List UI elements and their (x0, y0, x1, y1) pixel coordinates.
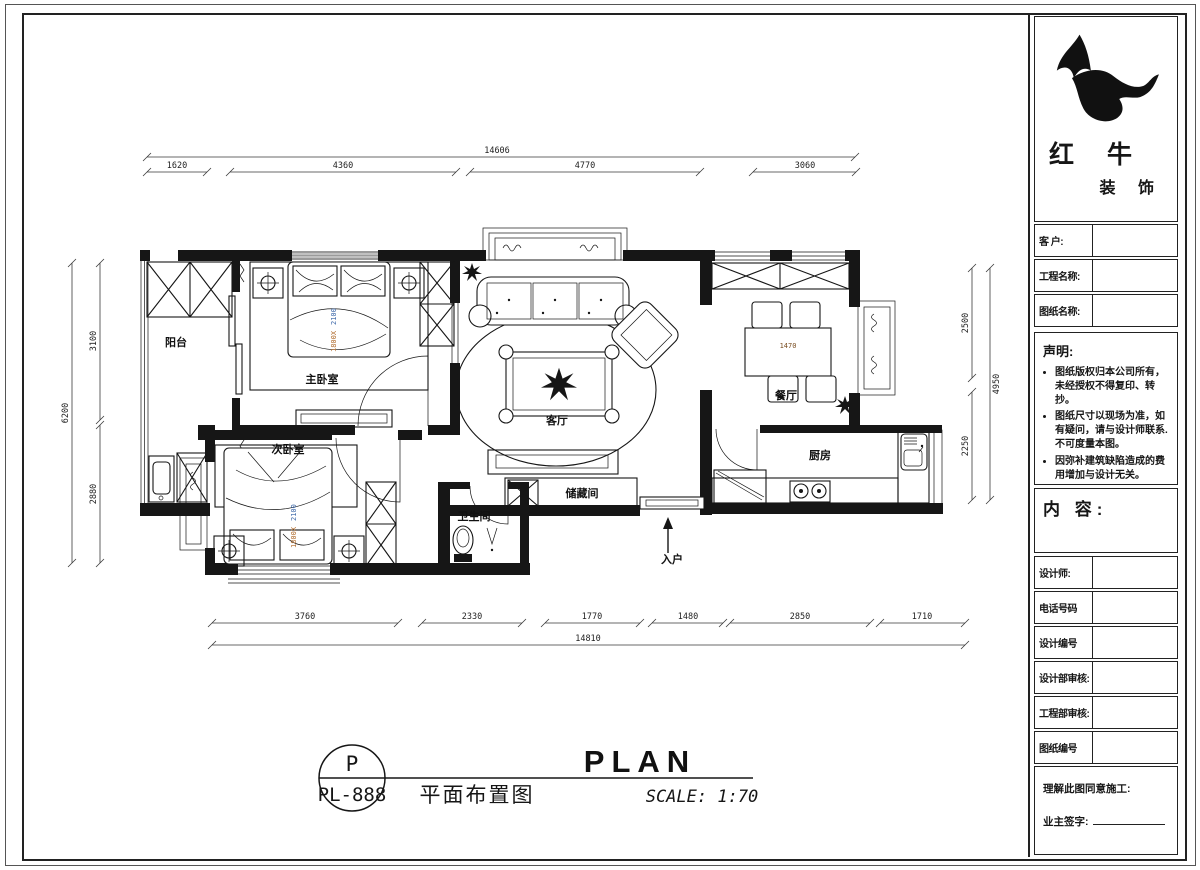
field-value[interactable] (1093, 627, 1177, 658)
sheet-title-en: PLAN (584, 744, 696, 779)
dim-bottom-seg: 1710 (912, 612, 932, 622)
field-value[interactable] (1093, 697, 1177, 728)
room-label-living: 客厅 (545, 413, 568, 427)
tv-cabinet (296, 410, 392, 427)
bay-window-dining (858, 301, 895, 395)
dim-bottom-total: 14810 (575, 634, 601, 644)
door-kitchen (716, 429, 757, 470)
sheet-code-letter: P (346, 752, 359, 776)
dim-bottom-seg: 1480 (678, 612, 698, 622)
company-logo-box: 红 牛 装 饰 (1034, 16, 1178, 222)
dim-bottom-seg: 1770 (582, 612, 602, 622)
drawing-sheet: 14606 1620 4360 4770 3060 3760 2330 1770… (0, 0, 1200, 870)
coffee-table (499, 345, 619, 423)
floor-plan-svg: 14606 1620 4360 4770 3060 3760 2330 1770… (22, 13, 1028, 857)
field-value[interactable] (1093, 557, 1177, 588)
entry-arrow-icon (663, 517, 673, 529)
content-box: 内 容: (1034, 488, 1178, 553)
window-bedroom2 (228, 566, 340, 583)
bed-size-label: 1800X (290, 526, 298, 548)
field-label: 图纸名称: (1035, 295, 1093, 326)
statement-list: 图纸版权归本公司所有，未经授权不得复印、转抄。 图纸尺寸以现场为准，如有疑问，请… (1043, 366, 1171, 482)
room-label-bathroom: 卫生间 (458, 509, 491, 523)
field-value[interactable] (1093, 592, 1177, 623)
bed-size-label: 1800X (330, 330, 338, 352)
dim-right-seg: 2500 (961, 313, 971, 333)
door-master (358, 356, 428, 426)
field-label: 设计编号 (1035, 627, 1093, 658)
statement-item: 图纸尺寸以现场为准，如有疑问，请与设计师联系. 不可度量本图。 (1055, 410, 1171, 451)
signature-box: 理解此图同意施工: 业主签字: (1034, 766, 1178, 855)
toilet (454, 554, 472, 562)
field-label: 工程部审核: (1035, 697, 1093, 728)
field-label: 电话号码 (1035, 592, 1093, 623)
dim-top-seg: 3060 (795, 161, 815, 171)
field-row-drawing-name: 图纸名称: (1034, 294, 1178, 327)
field-value[interactable] (1093, 260, 1177, 291)
field-value[interactable] (1093, 662, 1177, 693)
field-row-drawing-number: 图纸编号 (1034, 731, 1178, 764)
room-label-dining: 餐厅 (774, 388, 797, 402)
sliding-door (236, 344, 242, 394)
content-label: 内 容: (1043, 500, 1107, 519)
entry: 入户 (640, 497, 704, 566)
field-row-project-name: 工程名称: (1034, 259, 1178, 292)
ceiling-light-icon (253, 268, 283, 298)
sink (901, 434, 927, 470)
field-value[interactable] (1093, 225, 1177, 256)
field-label: 图纸编号 (1035, 732, 1093, 763)
dim-left-seg: 2880 (89, 484, 99, 504)
statement-box: 声明: 图纸版权归本公司所有，未经授权不得复印、转抄。 图纸尺寸以现场为准，如有… (1034, 332, 1178, 485)
dim-bottom-seg: 2330 (462, 612, 482, 622)
field-label: 设计师: (1035, 557, 1093, 588)
title-block-sidebar: 红 牛 装 饰 客 户: 工程名称: 图纸名称: 声明: 图纸版权归本公司所有，… (1028, 13, 1185, 857)
company-name-line1: 红 牛 (1049, 135, 1177, 171)
tv-cabinet (488, 450, 618, 474)
dim-left-total: 6200 (61, 403, 71, 423)
counter-cabinet (714, 470, 766, 503)
field-label: 设计部审核: (1035, 662, 1093, 693)
sheet-scale: SCALE: 1:70 (646, 787, 759, 807)
field-value[interactable] (1093, 295, 1177, 326)
room-label-storage: 储藏间 (566, 486, 599, 500)
balcony-furniture (147, 262, 232, 502)
statement-item: 因弥补建筑缺陷造成的费用增加与设计无关。 (1055, 455, 1171, 483)
bay-window-top (483, 228, 627, 260)
room-label-kitchen: 厨房 (809, 448, 831, 462)
dim-bottom-seg: 2850 (790, 612, 810, 622)
bathroom-furniture (453, 526, 497, 562)
dim-top-seg: 4360 (333, 161, 353, 171)
field-label: 工程名称: (1035, 260, 1093, 291)
master-bedroom-furniture: 1800X 2100 (250, 262, 454, 427)
field-label: 客 户: (1035, 225, 1093, 256)
room-label-balcony: 阳台 (165, 335, 187, 349)
sheet-code-number: PL-888 (318, 784, 387, 806)
room-label-entry: 入户 (661, 552, 683, 566)
ceiling-light-icon (334, 536, 364, 566)
room-label-master: 主卧室 (306, 372, 339, 386)
window-kitchen (929, 430, 942, 505)
dining-table-label: 1470 (780, 342, 797, 350)
statement-title: 声明: (1043, 341, 1171, 360)
sofa (477, 277, 629, 325)
titleblock: P PL-888 平面布置图 PLAN SCALE: 1:70 (318, 744, 759, 811)
window-master (292, 251, 378, 260)
dim-right-total: 4950 (992, 374, 1002, 394)
field-row-designer: 设计师: (1034, 556, 1178, 589)
dim-top-total: 14606 (484, 146, 510, 156)
field-value[interactable] (1093, 732, 1177, 763)
room-label-bedroom2: 次卧室 (272, 442, 305, 456)
sheet-title-cn: 平面布置图 (420, 784, 535, 807)
field-row-design-review: 设计部审核: (1034, 661, 1178, 694)
statement-item: 图纸版权归本公司所有，未经授权不得复印、转抄。 (1055, 366, 1171, 407)
field-row-design-number: 设计编号 (1034, 626, 1178, 659)
door-bedroom2 (336, 438, 400, 502)
bed-size-label: 2100 (330, 308, 338, 325)
stove (790, 481, 830, 502)
field-row-phone: 电话号码 (1034, 591, 1178, 624)
second-bedroom-furniture: 1800X 2100 (214, 445, 396, 566)
living-room-furniture (456, 263, 682, 474)
bull-logo-icon (1046, 29, 1166, 133)
consent-text: 理解此图同意施工: (1043, 781, 1171, 796)
signature-line[interactable] (1093, 814, 1165, 825)
dim-top-seg: 4770 (575, 161, 595, 171)
company-name-line2: 装 饰 (1035, 174, 1163, 198)
dining-table (745, 328, 831, 376)
owner-signature-label: 业主签字: (1043, 814, 1171, 829)
dim-bottom-seg: 3760 (295, 612, 315, 622)
dim-right-seg: 2250 (961, 436, 971, 456)
kitchen-furniture (712, 432, 929, 503)
field-row-engineering-review: 工程部审核: (1034, 696, 1178, 729)
bed-size-label: 2100 (290, 504, 298, 521)
dim-top-seg: 1620 (167, 161, 187, 171)
dim-left-seg: 3100 (89, 331, 99, 351)
plant-icon (462, 263, 482, 281)
field-row-customer: 客 户: (1034, 224, 1178, 257)
